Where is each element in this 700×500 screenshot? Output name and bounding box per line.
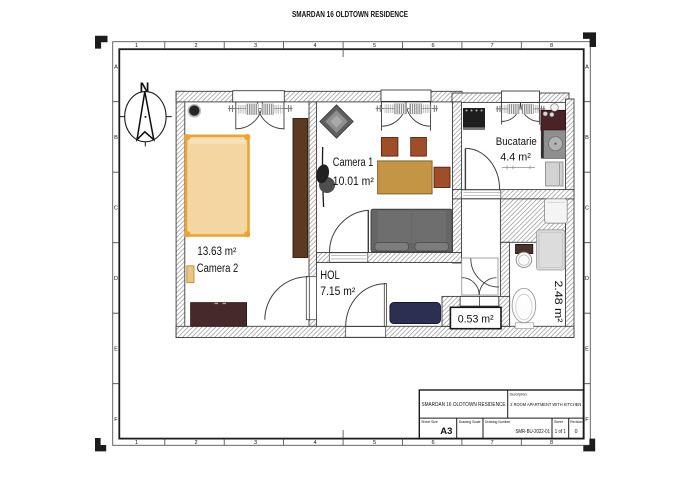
svg-text:F: F bbox=[114, 417, 118, 423]
svg-text:E: E bbox=[114, 347, 118, 353]
svg-text:3: 3 bbox=[254, 43, 257, 49]
svg-text:2 ROOM APARTMENT WITH KITCHEN: 2 ROOM APARTMENT WITH KITCHEN bbox=[510, 402, 581, 407]
svg-text:C: C bbox=[114, 206, 118, 212]
svg-text:Drawing Scale: Drawing Scale bbox=[459, 420, 481, 424]
svg-text:Camera 1: Camera 1 bbox=[333, 157, 374, 169]
svg-text:D: D bbox=[585, 276, 589, 282]
svg-text:2.48 m²: 2.48 m² bbox=[552, 281, 564, 323]
svg-text:E: E bbox=[585, 347, 589, 353]
svg-text:SMARDAN 16 OLDTOWN RESIDENCE: SMARDAN 16 OLDTOWN RESIDENCE bbox=[292, 10, 409, 19]
svg-text:Drawing Number: Drawing Number bbox=[485, 420, 511, 424]
svg-text:7: 7 bbox=[490, 43, 493, 49]
svg-text:Camera 2: Camera 2 bbox=[197, 263, 239, 275]
svg-text:6: 6 bbox=[431, 43, 434, 49]
svg-text:1: 1 bbox=[135, 43, 138, 49]
svg-text:2: 2 bbox=[194, 43, 197, 49]
svg-text:A: A bbox=[114, 65, 118, 71]
svg-text:1 of 1: 1 of 1 bbox=[555, 429, 566, 435]
svg-text:Sheet Size: Sheet Size bbox=[421, 420, 438, 424]
svg-text:5: 5 bbox=[373, 43, 376, 49]
svg-text:6: 6 bbox=[431, 440, 434, 446]
svg-text:N: N bbox=[140, 80, 150, 95]
svg-text:0.53 m²: 0.53 m² bbox=[458, 314, 494, 326]
svg-text:4: 4 bbox=[313, 43, 316, 49]
svg-text:B: B bbox=[114, 135, 118, 141]
svg-text:8: 8 bbox=[550, 43, 553, 49]
svg-text:4: 4 bbox=[313, 440, 316, 446]
svg-text:C: C bbox=[585, 206, 589, 212]
svg-text:Revision: Revision bbox=[570, 420, 582, 424]
svg-text:5: 5 bbox=[373, 440, 376, 446]
svg-text:4.4 m²: 4.4 m² bbox=[500, 151, 531, 163]
svg-text:F: F bbox=[585, 417, 589, 423]
svg-text:10.01 m²: 10.01 m² bbox=[333, 176, 374, 188]
svg-text:2: 2 bbox=[194, 440, 197, 446]
svg-text:3: 3 bbox=[254, 440, 257, 446]
svg-text:7: 7 bbox=[490, 440, 493, 446]
svg-text:A3: A3 bbox=[440, 426, 452, 437]
svg-text:1: 1 bbox=[135, 440, 138, 446]
svg-text:A: A bbox=[585, 65, 589, 71]
svg-text:0: 0 bbox=[575, 429, 578, 435]
svg-text:7.15 m²: 7.15 m² bbox=[320, 286, 355, 298]
svg-text:Sheet: Sheet bbox=[554, 420, 563, 424]
svg-text:SMARDAN 16 OLDTOWN RESIDENCE: SMARDAN 16 OLDTOWN RESIDENCE bbox=[422, 402, 506, 408]
svg-text:SMR-BU-2022-01: SMR-BU-2022-01 bbox=[516, 429, 551, 435]
svg-text:HOL: HOL bbox=[320, 270, 340, 282]
svg-text:D: D bbox=[114, 276, 118, 282]
svg-text:Bucatarie: Bucatarie bbox=[496, 136, 537, 148]
svg-text:13.63 m²: 13.63 m² bbox=[197, 246, 236, 258]
svg-text:8: 8 bbox=[550, 440, 553, 446]
svg-text:Description:: Description: bbox=[510, 393, 528, 397]
svg-text:B: B bbox=[585, 135, 589, 141]
